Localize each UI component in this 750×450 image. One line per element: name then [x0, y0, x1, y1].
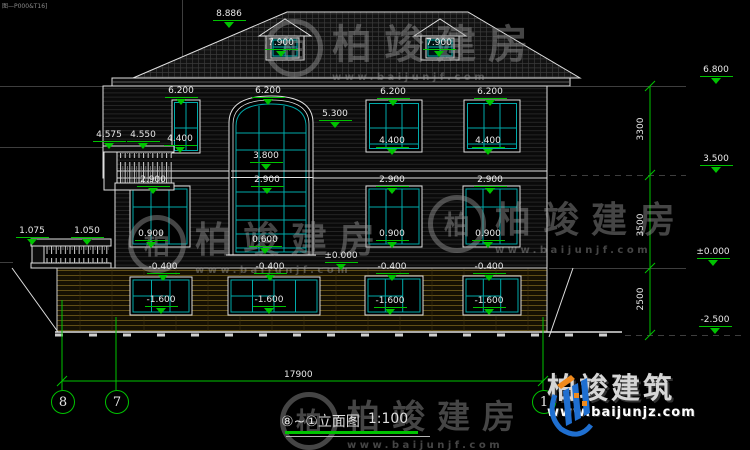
elev-label: -0.400: [148, 262, 177, 272]
elev-underline: [249, 246, 282, 247]
elev-label: 2.900: [477, 175, 503, 185]
elev-label: 6.200: [380, 87, 406, 97]
elev-bwin-head-2: -0.400: [248, 262, 292, 281]
elev-underline: [71, 237, 104, 238]
elev-triangle-icon: [387, 188, 397, 194]
elev-underline: [165, 97, 198, 98]
elev-triangle-icon: [485, 188, 495, 194]
elev-underline: [147, 273, 180, 274]
elev-f3-head-2: 6.200: [246, 86, 290, 105]
elev-arch-spring: 5.300: [313, 109, 357, 128]
elev-label: 4.400: [167, 134, 193, 144]
elev-label: -1.600: [146, 295, 175, 305]
elev-triangle-icon: [330, 122, 340, 128]
elev-triangle-icon: [385, 309, 395, 315]
elev-label: -0.400: [255, 262, 284, 272]
corner-note: 图—P000&T16]: [2, 1, 47, 10]
elev-label: 5.300: [322, 109, 348, 119]
elev-triangle-icon: [82, 239, 92, 245]
elev-triangle-icon: [262, 188, 272, 194]
elev-eave-right: 6.800: [694, 65, 738, 84]
elev-label: 4.400: [475, 136, 501, 146]
elev-f2-sill-3: 0.900: [466, 229, 510, 248]
elev-bwin-sill-1: -1.600: [139, 295, 183, 314]
elev-terrace-rail-outer: 1.075: [10, 226, 54, 245]
elev-f2-head-4: 2.900: [468, 175, 512, 194]
elev-label: 2.900: [254, 175, 280, 185]
elev-label: 0.900: [138, 229, 164, 239]
elev-triangle-icon: [224, 22, 234, 28]
elev-underline: [164, 145, 197, 146]
elev-underline: [251, 186, 284, 187]
elev-triangle-icon: [708, 260, 718, 266]
elev-triangle-icon: [388, 100, 398, 106]
elev-bwin-sill-4: -1.600: [467, 296, 511, 315]
elev-underline: [700, 165, 733, 166]
elev-f3-sill-3: 4.400: [466, 136, 510, 155]
grid-bubble-7: 7: [105, 390, 129, 414]
elev-label: 7.900: [268, 38, 294, 48]
drawing-title: ⑧~①立面图 1:100: [281, 411, 408, 431]
elev-label: 4.575: [96, 130, 122, 140]
elev-underline: [697, 258, 730, 259]
elev-bwin-head-4: -0.400: [467, 262, 511, 281]
elev-label: -2.500: [700, 315, 729, 325]
elev-underline: [376, 147, 409, 148]
elev-label: ±0.000: [696, 247, 729, 257]
elev-ridge: 8.886: [207, 9, 251, 28]
elev-underline: [254, 273, 287, 274]
elev-f2-sill-2: 0.900: [370, 229, 414, 248]
elev-label: -1.600: [474, 296, 503, 306]
elev-underline: [474, 186, 507, 187]
elev-label: 3.800: [253, 151, 279, 161]
elev-f3-head-4: 6.200: [468, 87, 512, 106]
elev-triangle-icon: [27, 239, 37, 245]
elev-underline: [127, 141, 160, 142]
elev-underline: [374, 307, 407, 308]
elev-triangle-icon: [710, 328, 720, 334]
elev-triangle-icon: [260, 248, 270, 254]
elev-label: 4.550: [130, 130, 156, 140]
elev-bwin-sill-3: -1.600: [368, 296, 412, 315]
elev-label: -1.600: [375, 296, 404, 306]
footer-logo-icon: [545, 371, 597, 439]
grid-number: 7: [113, 395, 121, 410]
elev-label: ±0.000: [324, 251, 357, 261]
elev-underline: [376, 186, 409, 187]
elev-f3-floor-right: 3.500: [694, 154, 738, 173]
elev-label: 6.200: [168, 86, 194, 96]
elev-f2-sill-1: 0.900: [129, 229, 173, 248]
elev-underline: [319, 120, 352, 121]
elev-f3-sill-1: 4.400: [158, 134, 202, 153]
elev-triangle-icon: [158, 275, 168, 281]
elev-underline: [376, 273, 409, 274]
grid-number: 8: [59, 395, 67, 410]
elev-f2-head-3: 2.900: [370, 175, 414, 194]
elev-triangle-icon: [484, 309, 494, 315]
elev-triangle-icon: [175, 147, 185, 153]
elev-triangle-icon: [263, 99, 273, 105]
elev-triangle-icon: [483, 242, 493, 248]
elev-label: 0.600: [252, 235, 278, 245]
elev-triangle-icon: [176, 99, 186, 105]
elev-triangle-icon: [264, 308, 274, 314]
elev-triangle-icon: [156, 308, 166, 314]
elev-bwin-head-3: -0.400: [370, 262, 414, 281]
drawing-title-name: ⑧~①立面图: [281, 411, 360, 431]
elev-underline: [472, 240, 505, 241]
elev-underline: [473, 307, 506, 308]
elev-f3-sill-2: 4.400: [370, 136, 414, 155]
elev-arch-sill: 0.600: [243, 235, 287, 254]
dim-floor3-height: 3300: [636, 118, 646, 141]
elev-triangle-icon: [261, 164, 271, 170]
elev-triangle-icon: [483, 149, 493, 155]
cad-elevation-drawing: 柏 柏竣建房 www.baijunjf.com 柏 柏竣建房 www.baiju…: [0, 0, 750, 450]
elev-ground-right: ±0.000: [691, 247, 735, 266]
elev-bwin-sill-2: -1.600: [247, 295, 291, 314]
elev-triangle-icon: [711, 78, 721, 84]
elev-underline: [699, 326, 732, 327]
elev-label: 1.075: [19, 226, 45, 236]
elev-bwin-head-1: -0.400: [141, 262, 185, 281]
elev-underline: [376, 240, 409, 241]
elev-triangle-icon: [387, 149, 397, 155]
elev-label: -0.400: [377, 262, 406, 272]
elev-label: 2.900: [379, 175, 405, 185]
elev-label: -1.600: [254, 295, 283, 305]
elev-triangle-icon: [711, 167, 721, 173]
elev-label: 6.200: [255, 86, 281, 96]
elev-underline: [474, 98, 507, 99]
elev-triangle-icon: [104, 143, 114, 149]
elev-terrace-rail-inner: 1.050: [65, 226, 109, 245]
elev-underline: [252, 97, 285, 98]
elev-underline: [253, 306, 286, 307]
elev-underline: [213, 20, 246, 21]
elev-triangle-icon: [336, 264, 346, 270]
elev-f2-head-1: 2.900: [131, 175, 175, 194]
elev-label: 2.900: [140, 175, 166, 185]
elev-label: 7.900: [426, 38, 452, 48]
elev-triangle-icon: [148, 188, 158, 194]
footer-logo: 柏竣建筑 www.baijunjz.com: [545, 371, 696, 420]
dim-basement-height: 2500: [636, 288, 646, 311]
elev-underline: [700, 76, 733, 77]
elev-label: 3.500: [703, 154, 729, 164]
elev-underline: [145, 306, 178, 307]
elev-underline: [423, 49, 456, 50]
elev-ground-center: ±0.000: [319, 251, 363, 270]
elev-underline: [135, 240, 168, 241]
elev-label: 4.400: [379, 136, 405, 146]
elev-triangle-icon: [138, 143, 148, 149]
elev-label: 6.200: [477, 87, 503, 97]
elev-f3-head-1: 6.200: [159, 86, 203, 105]
elev-underline: [265, 49, 298, 50]
elev-underline: [473, 273, 506, 274]
elev-triangle-icon: [485, 100, 495, 106]
elev-dormer-left: 7.900: [259, 38, 303, 57]
elev-underline: [472, 147, 505, 148]
elev-underline: [377, 98, 410, 99]
elev-underline: [250, 162, 283, 163]
elev-underline: [137, 186, 170, 187]
elev-label: 1.050: [74, 226, 100, 236]
elev-triangle-icon: [387, 242, 397, 248]
elev-label: 0.900: [475, 229, 501, 239]
drawing-title-scale: 1:100: [368, 411, 408, 431]
elev-triangle-icon: [146, 242, 156, 248]
grid-bubble-8: 8: [51, 390, 75, 414]
elev-label: 8.886: [216, 9, 242, 19]
elev-triangle-icon: [387, 275, 397, 281]
elev-label: 6.800: [703, 65, 729, 75]
elev-underline: [16, 237, 49, 238]
title-underline-thin: [286, 436, 430, 437]
elev-triangle-icon: [276, 51, 286, 57]
elev-f2-head-2: 2.900: [245, 175, 289, 194]
elev-label: -0.400: [474, 262, 503, 272]
elev-underline: [325, 262, 358, 263]
elev-label: 0.900: [379, 229, 405, 239]
elev-f3-head-3: 6.200: [371, 87, 415, 106]
elev-footing-right: -2.500: [693, 315, 737, 334]
elev-dormer-right: 7.900: [417, 38, 461, 57]
elev-triangle-icon: [265, 275, 275, 281]
title-underline-green: [285, 431, 418, 434]
elev-triangle-icon: [484, 275, 494, 281]
elev-triangle-icon: [434, 51, 444, 57]
dim-total-width: 17900: [284, 370, 313, 380]
dim-floor2-height: 3500: [636, 214, 646, 237]
elev-arch-transom: 3.800: [244, 151, 288, 170]
